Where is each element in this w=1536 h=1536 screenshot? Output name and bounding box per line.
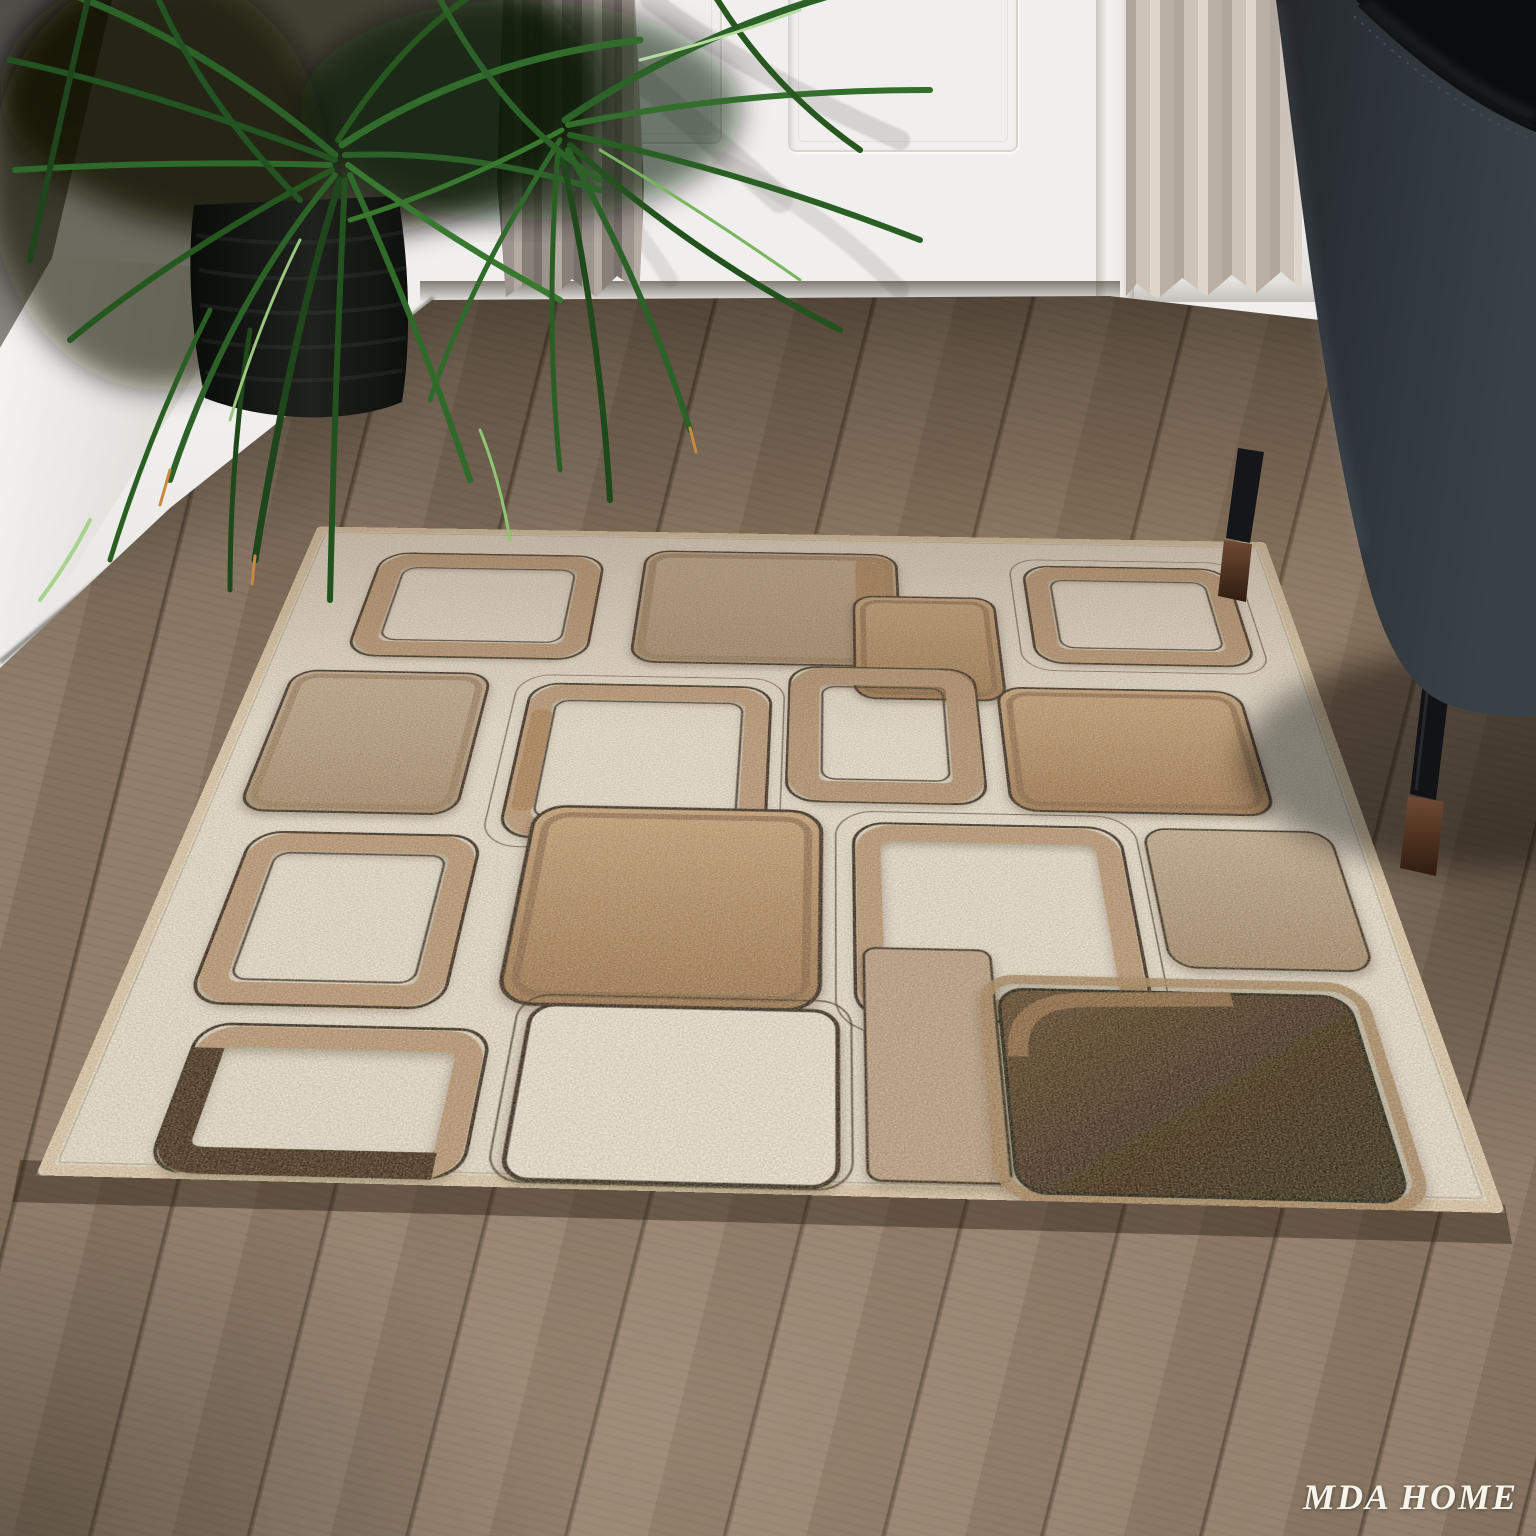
chair-rear-leg [1218,448,1264,602]
brand-watermark: MDA HOME [1303,1476,1518,1518]
potted-palm-plant [0,0,1000,720]
black-leather-chair [1100,0,1536,1050]
room-photo: MDA HOME [0,0,1536,1536]
chair-leg-wood-cap [1218,540,1252,602]
